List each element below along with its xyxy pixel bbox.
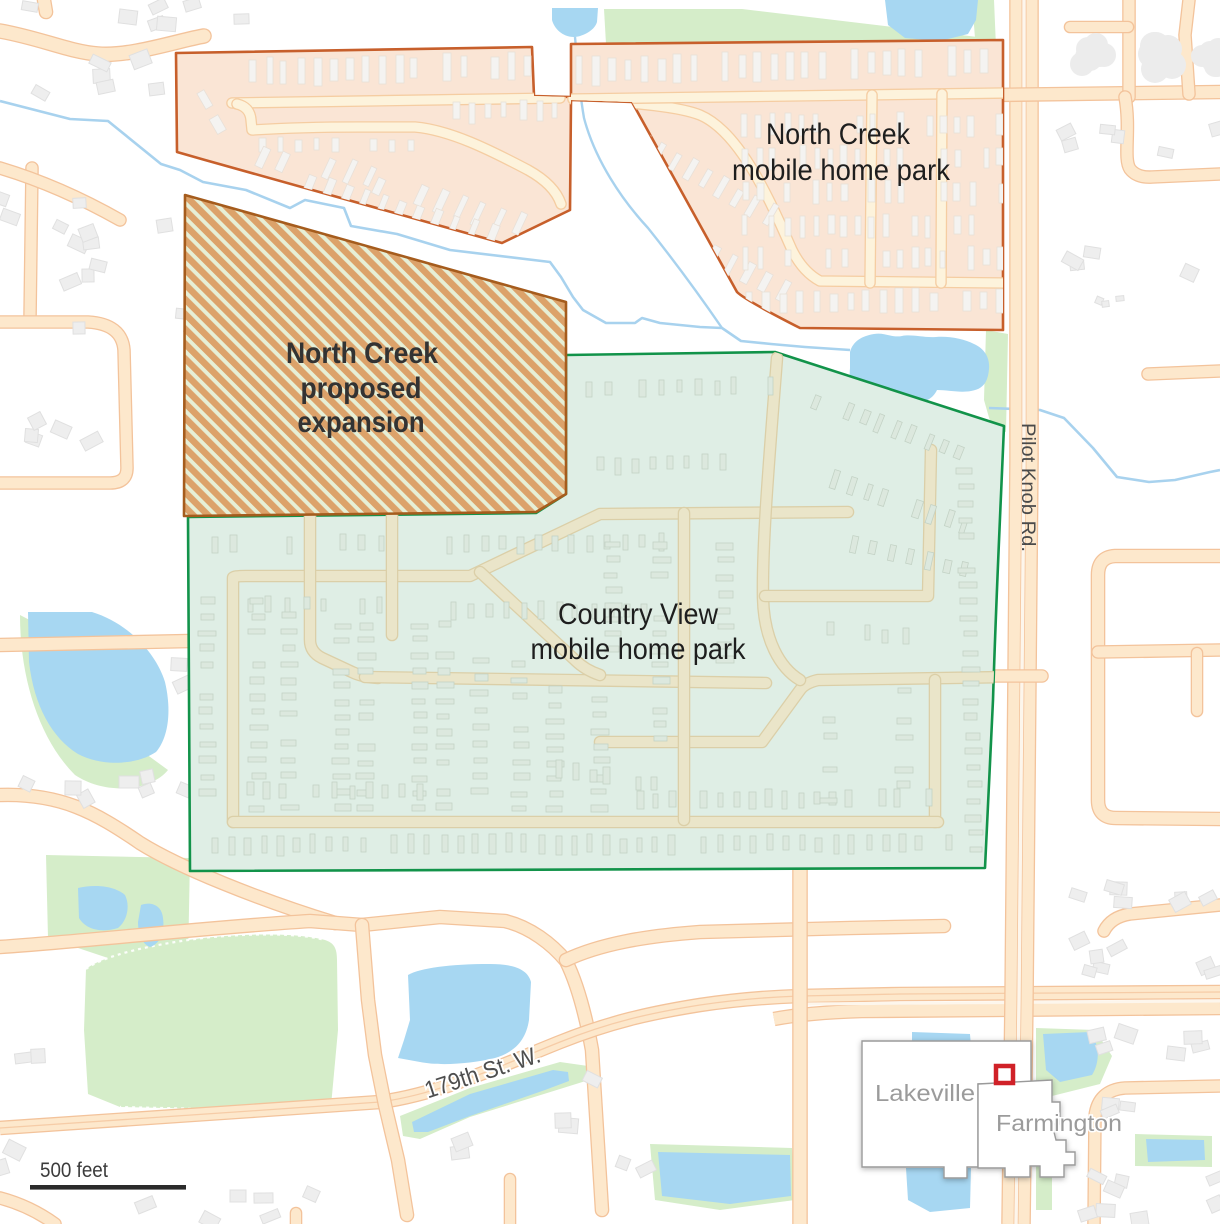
svg-text:mobile home park: mobile home park — [531, 633, 747, 666]
svg-text:Lakeville: Lakeville — [875, 1080, 975, 1106]
svg-text:mobile home park: mobile home park — [732, 154, 951, 187]
svg-text:500 feet: 500 feet — [40, 1159, 108, 1182]
svg-text:Farmington: Farmington — [996, 1110, 1122, 1136]
svg-text:proposed: proposed — [301, 372, 422, 405]
svg-text:expansion: expansion — [298, 406, 425, 439]
svg-text:North Creek: North Creek — [766, 118, 911, 151]
svg-text:Country View: Country View — [558, 598, 718, 631]
svg-text:North Creek: North Creek — [286, 337, 438, 370]
svg-text:Pilot Knob Rd.: Pilot Knob Rd. — [1017, 423, 1038, 552]
